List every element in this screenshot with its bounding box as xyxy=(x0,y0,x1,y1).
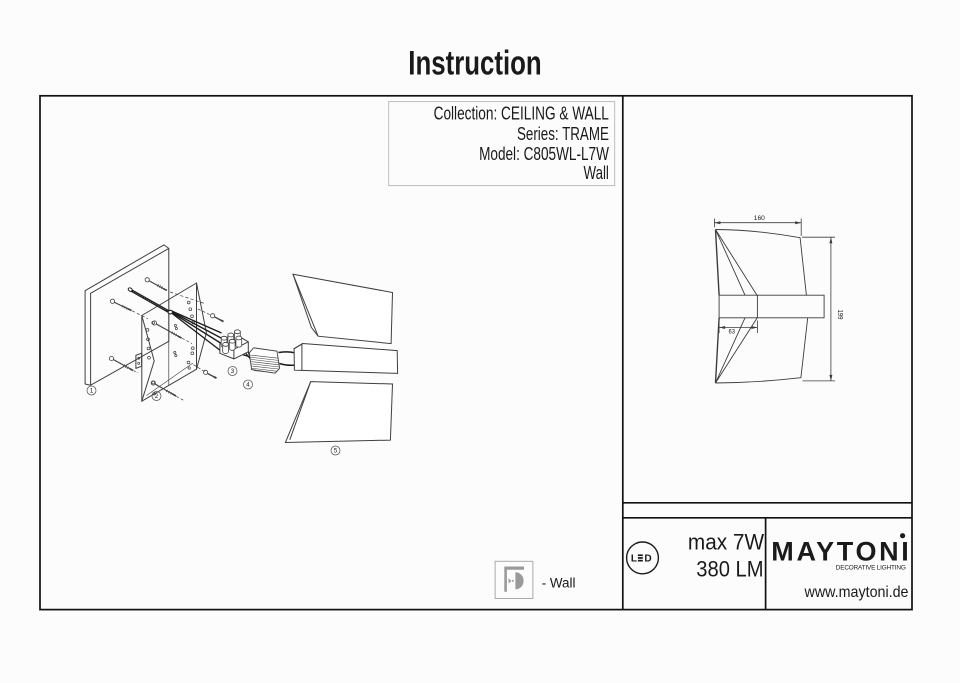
svg-text:Wall: Wall xyxy=(584,163,609,183)
svg-text:3: 3 xyxy=(231,368,235,375)
svg-text:D: D xyxy=(644,553,651,564)
svg-text:L: L xyxy=(631,553,637,564)
svg-text:- Wall: - Wall xyxy=(542,575,576,590)
svg-text:Model: C805WL-L7W: Model: C805WL-L7W xyxy=(479,144,609,164)
svg-text:Instruction: Instruction xyxy=(408,44,541,82)
svg-text:1: 1 xyxy=(90,388,94,395)
svg-text:199: 199 xyxy=(836,310,843,320)
svg-text:www.maytoni.de: www.maytoni.de xyxy=(804,584,909,601)
svg-text:380 LM: 380 LM xyxy=(696,557,763,582)
svg-text:5: 5 xyxy=(334,448,338,455)
svg-text:63: 63 xyxy=(729,329,736,336)
svg-text:MAYTONI: MAYTONI xyxy=(771,536,909,566)
svg-text:4: 4 xyxy=(246,382,250,389)
svg-text:Collection: CEILING & WALL: Collection: CEILING & WALL xyxy=(434,104,609,124)
svg-text:Series: TRAME: Series: TRAME xyxy=(517,124,609,144)
svg-text:DECORATIVE LIGHTING: DECORATIVE LIGHTING xyxy=(836,565,906,572)
svg-text:160: 160 xyxy=(754,215,765,222)
svg-text:2: 2 xyxy=(155,393,159,400)
svg-text:max 7W: max 7W xyxy=(688,529,764,554)
